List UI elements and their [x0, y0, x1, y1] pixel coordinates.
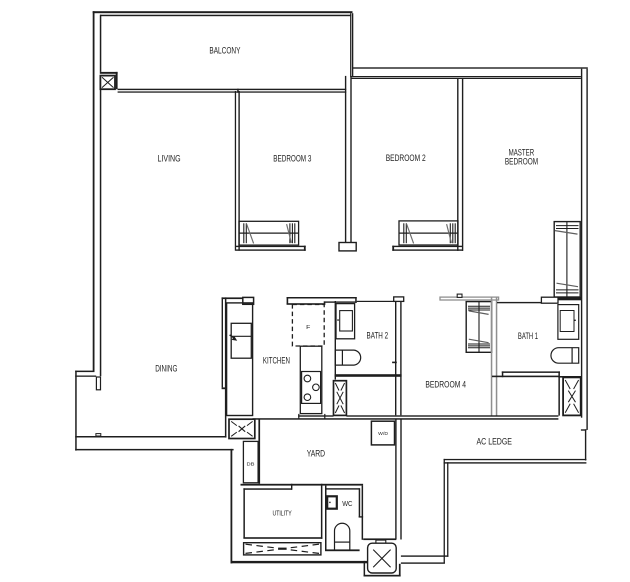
svg-text:W/D: W/D — [378, 431, 389, 436]
svg-text:BEDROOM 2: BEDROOM 2 — [386, 153, 426, 163]
svg-text:F: F — [306, 325, 310, 331]
svg-text:AC LEDGE: AC LEDGE — [477, 437, 513, 447]
svg-text:UTILITY: UTILITY — [273, 509, 292, 518]
svg-text:BEDROOM: BEDROOM — [505, 157, 538, 167]
svg-text:BATH 1: BATH 1 — [518, 331, 538, 341]
svg-text:LIVING: LIVING — [158, 154, 181, 164]
svg-text:BEDROOM 3: BEDROOM 3 — [273, 154, 311, 164]
svg-text:WC: WC — [342, 501, 352, 508]
svg-text:BEDROOM 4: BEDROOM 4 — [425, 379, 466, 389]
svg-text:KITCHEN: KITCHEN — [263, 355, 290, 365]
svg-text:DINING: DINING — [155, 364, 177, 374]
svg-text:DB: DB — [247, 462, 255, 467]
svg-text:BATH 2: BATH 2 — [367, 330, 389, 340]
svg-text:BALCONY: BALCONY — [209, 46, 240, 56]
svg-text:YARD: YARD — [307, 449, 325, 459]
